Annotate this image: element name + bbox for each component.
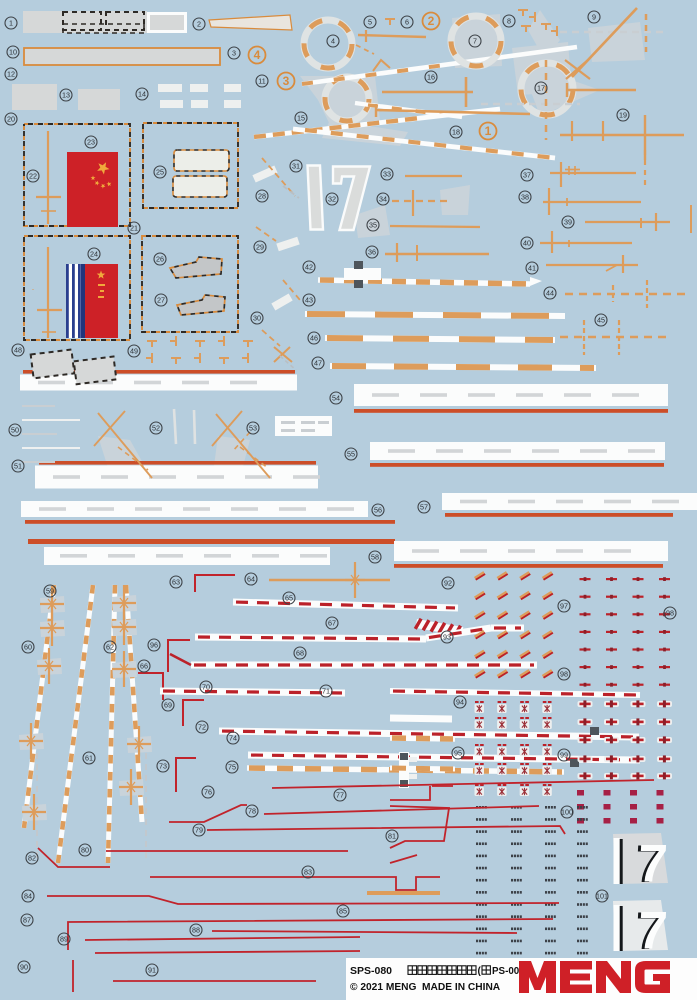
svg-text:67: 67 [328, 619, 336, 628]
svg-text:20: 20 [7, 115, 15, 124]
svg-text:60: 60 [24, 643, 32, 652]
svg-text:70: 70 [202, 683, 210, 692]
svg-text:5: 5 [368, 18, 372, 27]
svg-text:33: 33 [383, 170, 391, 179]
svg-text:78: 78 [248, 807, 256, 816]
svg-text:9: 9 [592, 13, 596, 22]
svg-text:2: 2 [197, 20, 201, 29]
svg-text:46: 46 [310, 334, 318, 343]
svg-text:82: 82 [28, 854, 36, 863]
svg-text:48: 48 [14, 346, 22, 355]
svg-text:74: 74 [229, 734, 237, 743]
svg-text:39: 39 [564, 218, 572, 227]
svg-text:SPS-080: SPS-080 [350, 965, 392, 977]
svg-text:44: 44 [546, 289, 554, 298]
svg-text:32: 32 [328, 195, 336, 204]
svg-text:84: 84 [24, 892, 32, 901]
svg-text:© 2021 MENG MADE IN CHINA: © 2021 MENG MADE IN CHINA [350, 982, 501, 993]
svg-text:35: 35 [369, 221, 377, 230]
svg-text:24: 24 [90, 250, 98, 259]
svg-text:40: 40 [523, 239, 531, 248]
svg-text:1: 1 [9, 19, 13, 28]
svg-text:7: 7 [636, 902, 669, 961]
svg-text:92: 92 [444, 579, 452, 588]
svg-text:17: 17 [537, 84, 545, 93]
svg-text:80: 80 [81, 846, 89, 855]
svg-text:18: 18 [452, 128, 460, 137]
svg-text:11: 11 [258, 77, 265, 86]
svg-text:38: 38 [521, 193, 529, 202]
svg-text:43: 43 [305, 296, 313, 305]
svg-text:34: 34 [379, 195, 387, 204]
svg-text:25: 25 [156, 168, 164, 177]
svg-text:50: 50 [11, 426, 19, 435]
svg-text:13: 13 [62, 91, 70, 100]
svg-text:41: 41 [528, 264, 536, 273]
svg-text:42: 42 [305, 263, 313, 272]
svg-text:4: 4 [331, 37, 335, 46]
svg-text:55: 55 [347, 450, 355, 459]
svg-text:99: 99 [560, 751, 568, 760]
svg-text:63: 63 [172, 578, 180, 587]
svg-text:37: 37 [523, 171, 531, 180]
svg-text:97: 97 [560, 602, 568, 611]
svg-text:58: 58 [371, 553, 379, 562]
svg-text:61: 61 [85, 754, 93, 763]
svg-text:73: 73 [159, 762, 167, 771]
svg-text:89: 89 [60, 935, 68, 944]
svg-text:53: 53 [249, 424, 257, 433]
svg-text:88: 88 [192, 926, 200, 935]
svg-text:6: 6 [405, 18, 409, 27]
svg-text:14: 14 [138, 90, 146, 99]
svg-text:30: 30 [253, 314, 261, 323]
svg-text:45: 45 [597, 316, 605, 325]
svg-text:91: 91 [148, 966, 156, 975]
svg-text:93: 93 [443, 633, 451, 642]
svg-text:95: 95 [454, 749, 462, 758]
svg-text:69: 69 [164, 701, 172, 710]
svg-text:76: 76 [204, 788, 212, 797]
svg-text:23: 23 [87, 138, 95, 147]
svg-text:94: 94 [456, 698, 464, 707]
svg-text:28: 28 [258, 192, 266, 201]
svg-text:90: 90 [20, 963, 28, 972]
svg-text:36: 36 [368, 248, 376, 257]
svg-text:56: 56 [374, 506, 382, 515]
svg-text:51: 51 [14, 462, 22, 471]
svg-text:101: 101 [596, 892, 608, 901]
svg-text:3: 3 [232, 49, 236, 58]
svg-text:75: 75 [228, 763, 236, 772]
svg-text:54: 54 [332, 394, 340, 403]
svg-text:49: 49 [130, 347, 138, 356]
svg-text:77: 77 [336, 791, 344, 800]
svg-text:66: 66 [140, 662, 148, 671]
svg-text:79: 79 [195, 826, 203, 835]
svg-text:85: 85 [339, 907, 347, 916]
svg-text:16: 16 [427, 73, 435, 82]
svg-text:98: 98 [666, 609, 674, 618]
svg-text:12: 12 [7, 70, 15, 79]
svg-text:83: 83 [304, 868, 312, 877]
svg-text:81: 81 [388, 832, 396, 841]
svg-text:64: 64 [247, 575, 255, 584]
svg-text:1: 1 [485, 124, 492, 138]
svg-text:47: 47 [314, 359, 322, 368]
svg-text:26: 26 [156, 255, 164, 264]
svg-text:59: 59 [46, 587, 54, 596]
svg-text:100: 100 [561, 808, 573, 817]
svg-text:87: 87 [23, 916, 31, 925]
svg-text:7: 7 [636, 835, 669, 894]
svg-text:29: 29 [256, 243, 264, 252]
svg-text:7: 7 [473, 37, 477, 46]
svg-text:22: 22 [29, 172, 37, 181]
svg-text:98: 98 [560, 670, 568, 679]
svg-text:31: 31 [292, 162, 300, 171]
svg-text:96: 96 [150, 641, 158, 650]
svg-text:71: 71 [322, 687, 330, 696]
svg-text:21: 21 [130, 224, 138, 233]
svg-text:65: 65 [285, 594, 293, 603]
svg-text:72: 72 [198, 723, 206, 732]
svg-text:52: 52 [152, 424, 160, 433]
svg-text:8: 8 [507, 17, 511, 26]
svg-text:2: 2 [428, 14, 435, 28]
svg-text:4: 4 [254, 48, 261, 62]
svg-text:3: 3 [283, 74, 290, 88]
svg-text:62: 62 [106, 643, 114, 652]
svg-text:15: 15 [297, 114, 305, 123]
svg-text:27: 27 [157, 296, 165, 305]
svg-text:19: 19 [619, 111, 627, 120]
svg-text:10: 10 [9, 48, 17, 57]
svg-text:57: 57 [420, 503, 428, 512]
svg-text:68: 68 [296, 649, 304, 658]
